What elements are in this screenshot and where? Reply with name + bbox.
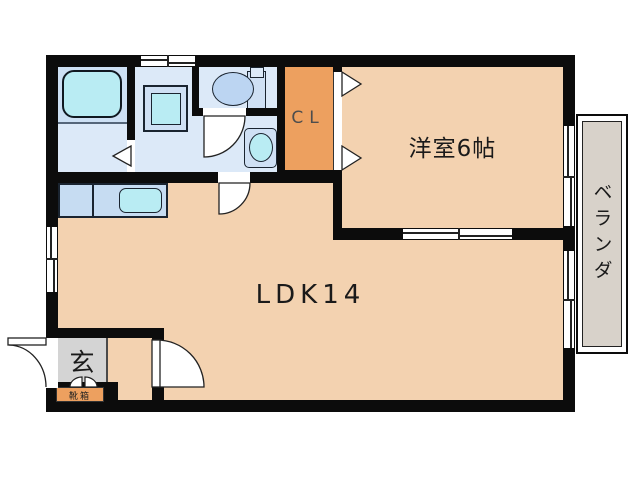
closet-label: CL [283, 108, 333, 128]
floor-plan: ベランダ 洋室6帖 LDK14 CL 玄 靴箱 [0, 0, 640, 480]
washroom-door-swing-icon [219, 183, 250, 214]
entrance-door-panel [8, 338, 46, 345]
ldk-label: LDK14 [183, 280, 438, 310]
shoe-cabinet-label: 靴箱 [56, 389, 104, 402]
toilet-door-swing-icon [204, 116, 245, 157]
entrance-door-swing-icon [9, 345, 46, 387]
closet-folding-door-icon [342, 72, 361, 96]
ldk-door-panel [152, 340, 160, 387]
door-symbols-layer [0, 0, 640, 480]
bath-folding-door-icon [113, 146, 131, 166]
western-room-label: 洋室6帖 [342, 129, 563, 163]
entrance-label: 玄 [58, 343, 106, 379]
ldk-door-swing-icon [157, 340, 204, 387]
